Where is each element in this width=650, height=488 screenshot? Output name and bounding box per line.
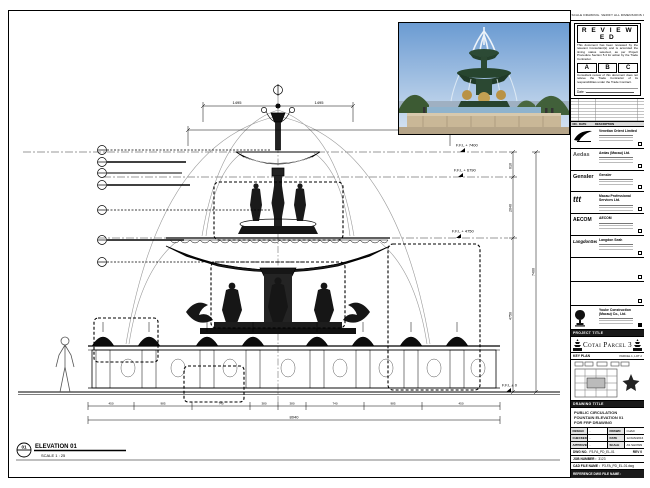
svg-text:380: 380 xyxy=(289,402,294,406)
drawing-sheet-page: { "stamp": { "strip_text": "DO NOT SCALE… xyxy=(0,0,650,488)
stamp-date-row: Date : xyxy=(577,88,638,94)
reviewed-stamp: R E V I E W E D This document has been r… xyxy=(571,21,644,99)
spare-box-2 xyxy=(571,282,644,306)
overall-dimension: 8040 xyxy=(290,415,300,420)
consultant-address xyxy=(599,179,633,186)
design-label: DESIGN xyxy=(571,428,588,434)
key-plan-map xyxy=(571,360,643,400)
reviewed-paragraph-2: Consultant review of this document does … xyxy=(577,74,638,84)
svg-text:450: 450 xyxy=(458,402,463,406)
job-number-label: JOB NUMBER : xyxy=(573,457,596,461)
drawing-title-line3: FOR FRP DRAWING xyxy=(574,420,641,425)
project-title-box: Cotai Parcel 3 xyxy=(571,337,644,353)
mps-logo: ttt xyxy=(573,193,597,212)
svg-text:7400: 7400 xyxy=(532,268,536,276)
grade-a-cell[interactable]: A xyxy=(577,63,597,73)
rev-desc-header: DESCRIPTION xyxy=(595,122,644,126)
drawn-label: DRAWN xyxy=(608,428,625,434)
consultant-name: Langdon Seah xyxy=(599,239,642,243)
do-not-scale-strip: DO NOT SCALE DRAWING. VERIFY ALL DIMENSI… xyxy=(571,10,644,21)
reference-file-band: REFERENCE DWG FILE NAME : xyxy=(571,470,644,478)
svg-text:740: 740 xyxy=(332,402,337,406)
fountain-photo-graphic xyxy=(399,23,569,134)
consultant-gensler: Gensler Gensler xyxy=(571,171,644,193)
approved-value: - xyxy=(588,442,608,448)
consultant-checkbox[interactable] xyxy=(638,207,642,211)
spare-checkbox[interactable] xyxy=(638,275,642,279)
revision-rows xyxy=(571,99,644,121)
reviewed-paragraph-1: This document has been reviewed by the r… xyxy=(577,44,638,61)
spare-consultant-boxes xyxy=(571,258,644,306)
reviewed-title: R E V I E W E D xyxy=(577,25,638,43)
consultant-address xyxy=(599,244,633,251)
rev-value: REV 0 xyxy=(633,450,642,454)
ornament-fountain-icon-right xyxy=(633,339,642,351)
status-grade-row: A B C xyxy=(577,63,638,73)
consultant-address xyxy=(599,157,633,164)
svg-text:740: 740 xyxy=(218,402,223,406)
checked-value: - xyxy=(588,435,608,441)
dwg-no-row: DWG NO. P3-FA_PD_EL-01 REV 0 xyxy=(571,449,644,456)
drawn-value: CHAD xyxy=(625,428,644,434)
level-6790-label: F.F.L + 6790 xyxy=(454,168,477,173)
key-plan-note: PARCEL 1, LOT 2 xyxy=(620,354,643,358)
consultant-name: Macau Professional Services Ltd. xyxy=(599,195,642,203)
consultant-checkbox[interactable] xyxy=(638,164,642,168)
design-value: - xyxy=(588,428,608,434)
drawing-info-table: DESIGN - DRAWN CHAD CHECKED - DATE 12/JA… xyxy=(571,428,644,449)
contractor-block: Youke Construction (Macau) Co., Ltd. xyxy=(571,306,644,330)
drawing-title-band: DRAWING TITLE xyxy=(571,401,644,408)
consultant-name: Aedas (Macau) Ltd. xyxy=(599,152,642,156)
date-fill-line[interactable] xyxy=(586,90,634,93)
consultant-checkbox[interactable] xyxy=(638,251,642,255)
contractor-address xyxy=(599,318,633,325)
spare-checkbox[interactable] xyxy=(638,299,642,303)
job-number-row: JOB NUMBER : 3123 xyxy=(571,456,644,463)
ornament-fountain-icon-left xyxy=(573,339,582,351)
job-number-value: 3123 xyxy=(598,457,605,461)
langdon-seah-logo: LangdonSeah xyxy=(573,237,597,256)
elevation-tag-number: 01 xyxy=(21,445,27,450)
revision-table-header: NO. DATE DESCRIPTION xyxy=(571,121,644,126)
consultant-name: Gensler xyxy=(599,174,642,178)
date-label: DATE xyxy=(608,435,625,441)
consultant-mps: ttt Macau Professional Services Ltd. xyxy=(571,192,644,214)
date-label: Date : xyxy=(577,90,586,94)
svg-text:1495: 1495 xyxy=(315,100,325,105)
consultant-checkbox[interactable] xyxy=(638,185,642,189)
consultant-blocks: Venetian Orient Limited Aedas Aedas (Mac… xyxy=(571,127,644,258)
consultant-address xyxy=(599,135,633,142)
lower-figure-tier xyxy=(186,274,370,334)
svg-text:2040: 2040 xyxy=(509,204,513,212)
spare-box-1 xyxy=(571,258,644,282)
pool-wall xyxy=(88,346,500,388)
project-title-band: PROJECT TITLE xyxy=(571,330,644,337)
level-0-label: F.F.L ± 0 xyxy=(502,383,518,388)
aecom-logo: AECOM xyxy=(573,215,597,234)
reference-photo xyxy=(398,22,570,135)
cad-file-row: CAD FILE NAME : P3-FA_PD_EL-01.dwg xyxy=(571,463,644,470)
consultant-name: Venetian Orient Limited xyxy=(599,130,642,134)
contractor-name: Youke Construction (Macau) Co., Ltd. xyxy=(599,309,642,317)
svg-text:1495: 1495 xyxy=(233,100,243,105)
consultant-venetian: Venetian Orient Limited xyxy=(571,127,644,149)
key-plan-section: KEY PLAN PARCEL 1, LOT 2 xyxy=(571,353,644,401)
consultant-langdon-seah: LangdonSeah Langdon Seah xyxy=(571,236,644,258)
approved-label: APPROVED xyxy=(571,442,588,448)
consultant-address xyxy=(599,205,633,212)
title-block: DO NOT SCALE DRAWING. VERIFY ALL DIMENSI… xyxy=(570,10,644,478)
cad-file-label: CAD FILE NAME : xyxy=(573,464,600,468)
elevation-title: ELEVATION 01 xyxy=(35,444,77,450)
venetian-swoosh-logo-icon xyxy=(573,128,597,147)
rev-date-header: DATE xyxy=(579,122,595,126)
upper-figure-tier xyxy=(238,176,318,234)
gensler-logo: Gensler xyxy=(573,172,597,191)
drawing-title-text: PUBLIC CIRCULATION FOUNTAIN ELEVATION 01… xyxy=(571,408,644,428)
svg-text:450: 450 xyxy=(108,402,113,406)
svg-text:985: 985 xyxy=(160,402,165,406)
grade-b-cell[interactable]: B xyxy=(598,63,618,73)
revision-table: NO. DATE DESCRIPTION xyxy=(571,99,644,127)
dwg-no-value: P3-FA_PD_EL-01 xyxy=(589,450,614,454)
aedas-logo: Aedas xyxy=(573,150,597,169)
project-title-text: Cotai Parcel 3 xyxy=(583,341,632,349)
svg-text:610: 610 xyxy=(509,163,513,169)
grade-c-cell[interactable]: C xyxy=(618,63,638,73)
dimension-bottom-chain: 450 985 740 380 380 740 985 450 8040 xyxy=(88,402,500,424)
key-plan-label: KEY PLAN xyxy=(573,354,590,358)
consultant-address xyxy=(599,223,633,230)
svg-text:985: 985 xyxy=(390,402,395,406)
consultant-checkbox[interactable] xyxy=(638,142,642,146)
checked-label: CHECKED xyxy=(571,435,588,441)
consultant-aedas: Aedas Aedas (Macau) Ltd. xyxy=(571,149,644,171)
level-4750-label: F.F.L + 4750 xyxy=(452,229,475,234)
consultant-checkbox[interactable] xyxy=(638,229,642,233)
svg-text:4750: 4750 xyxy=(509,312,513,320)
dimension-right-chain: 610 2040 4750 7400 xyxy=(509,150,541,394)
date-value: 12/JAN/2016 xyxy=(625,435,644,441)
level-markers: F.F.L + 7400 F.F.L + 6790 F.F.L + 4750 F… xyxy=(452,143,518,393)
detail-box-right xyxy=(388,244,480,390)
svg-text:380: 380 xyxy=(261,402,266,406)
dwg-no-label: DWG NO. xyxy=(573,450,587,454)
consultant-aecom: AECOM AECOM xyxy=(571,214,644,236)
contractor-trophy-logo-icon xyxy=(573,307,597,328)
rev-no-header: NO. xyxy=(571,122,579,126)
level-7400-label: F.F.L + 7400 xyxy=(456,143,479,148)
scale-value: AS SHOWN xyxy=(625,442,644,448)
elevation-title-tag: 01 ELEVATION 01 SCALE 1 : 25 xyxy=(16,443,560,460)
consultant-name: AECOM xyxy=(599,217,642,221)
scale-label: SCALE xyxy=(608,442,625,448)
contractor-checkbox[interactable] xyxy=(638,323,642,327)
elevation-scale: SCALE 1 : 25 xyxy=(41,453,66,458)
cad-file-value: P3-FA_PD_EL-01.dwg xyxy=(602,464,634,468)
scale-person xyxy=(56,337,74,392)
